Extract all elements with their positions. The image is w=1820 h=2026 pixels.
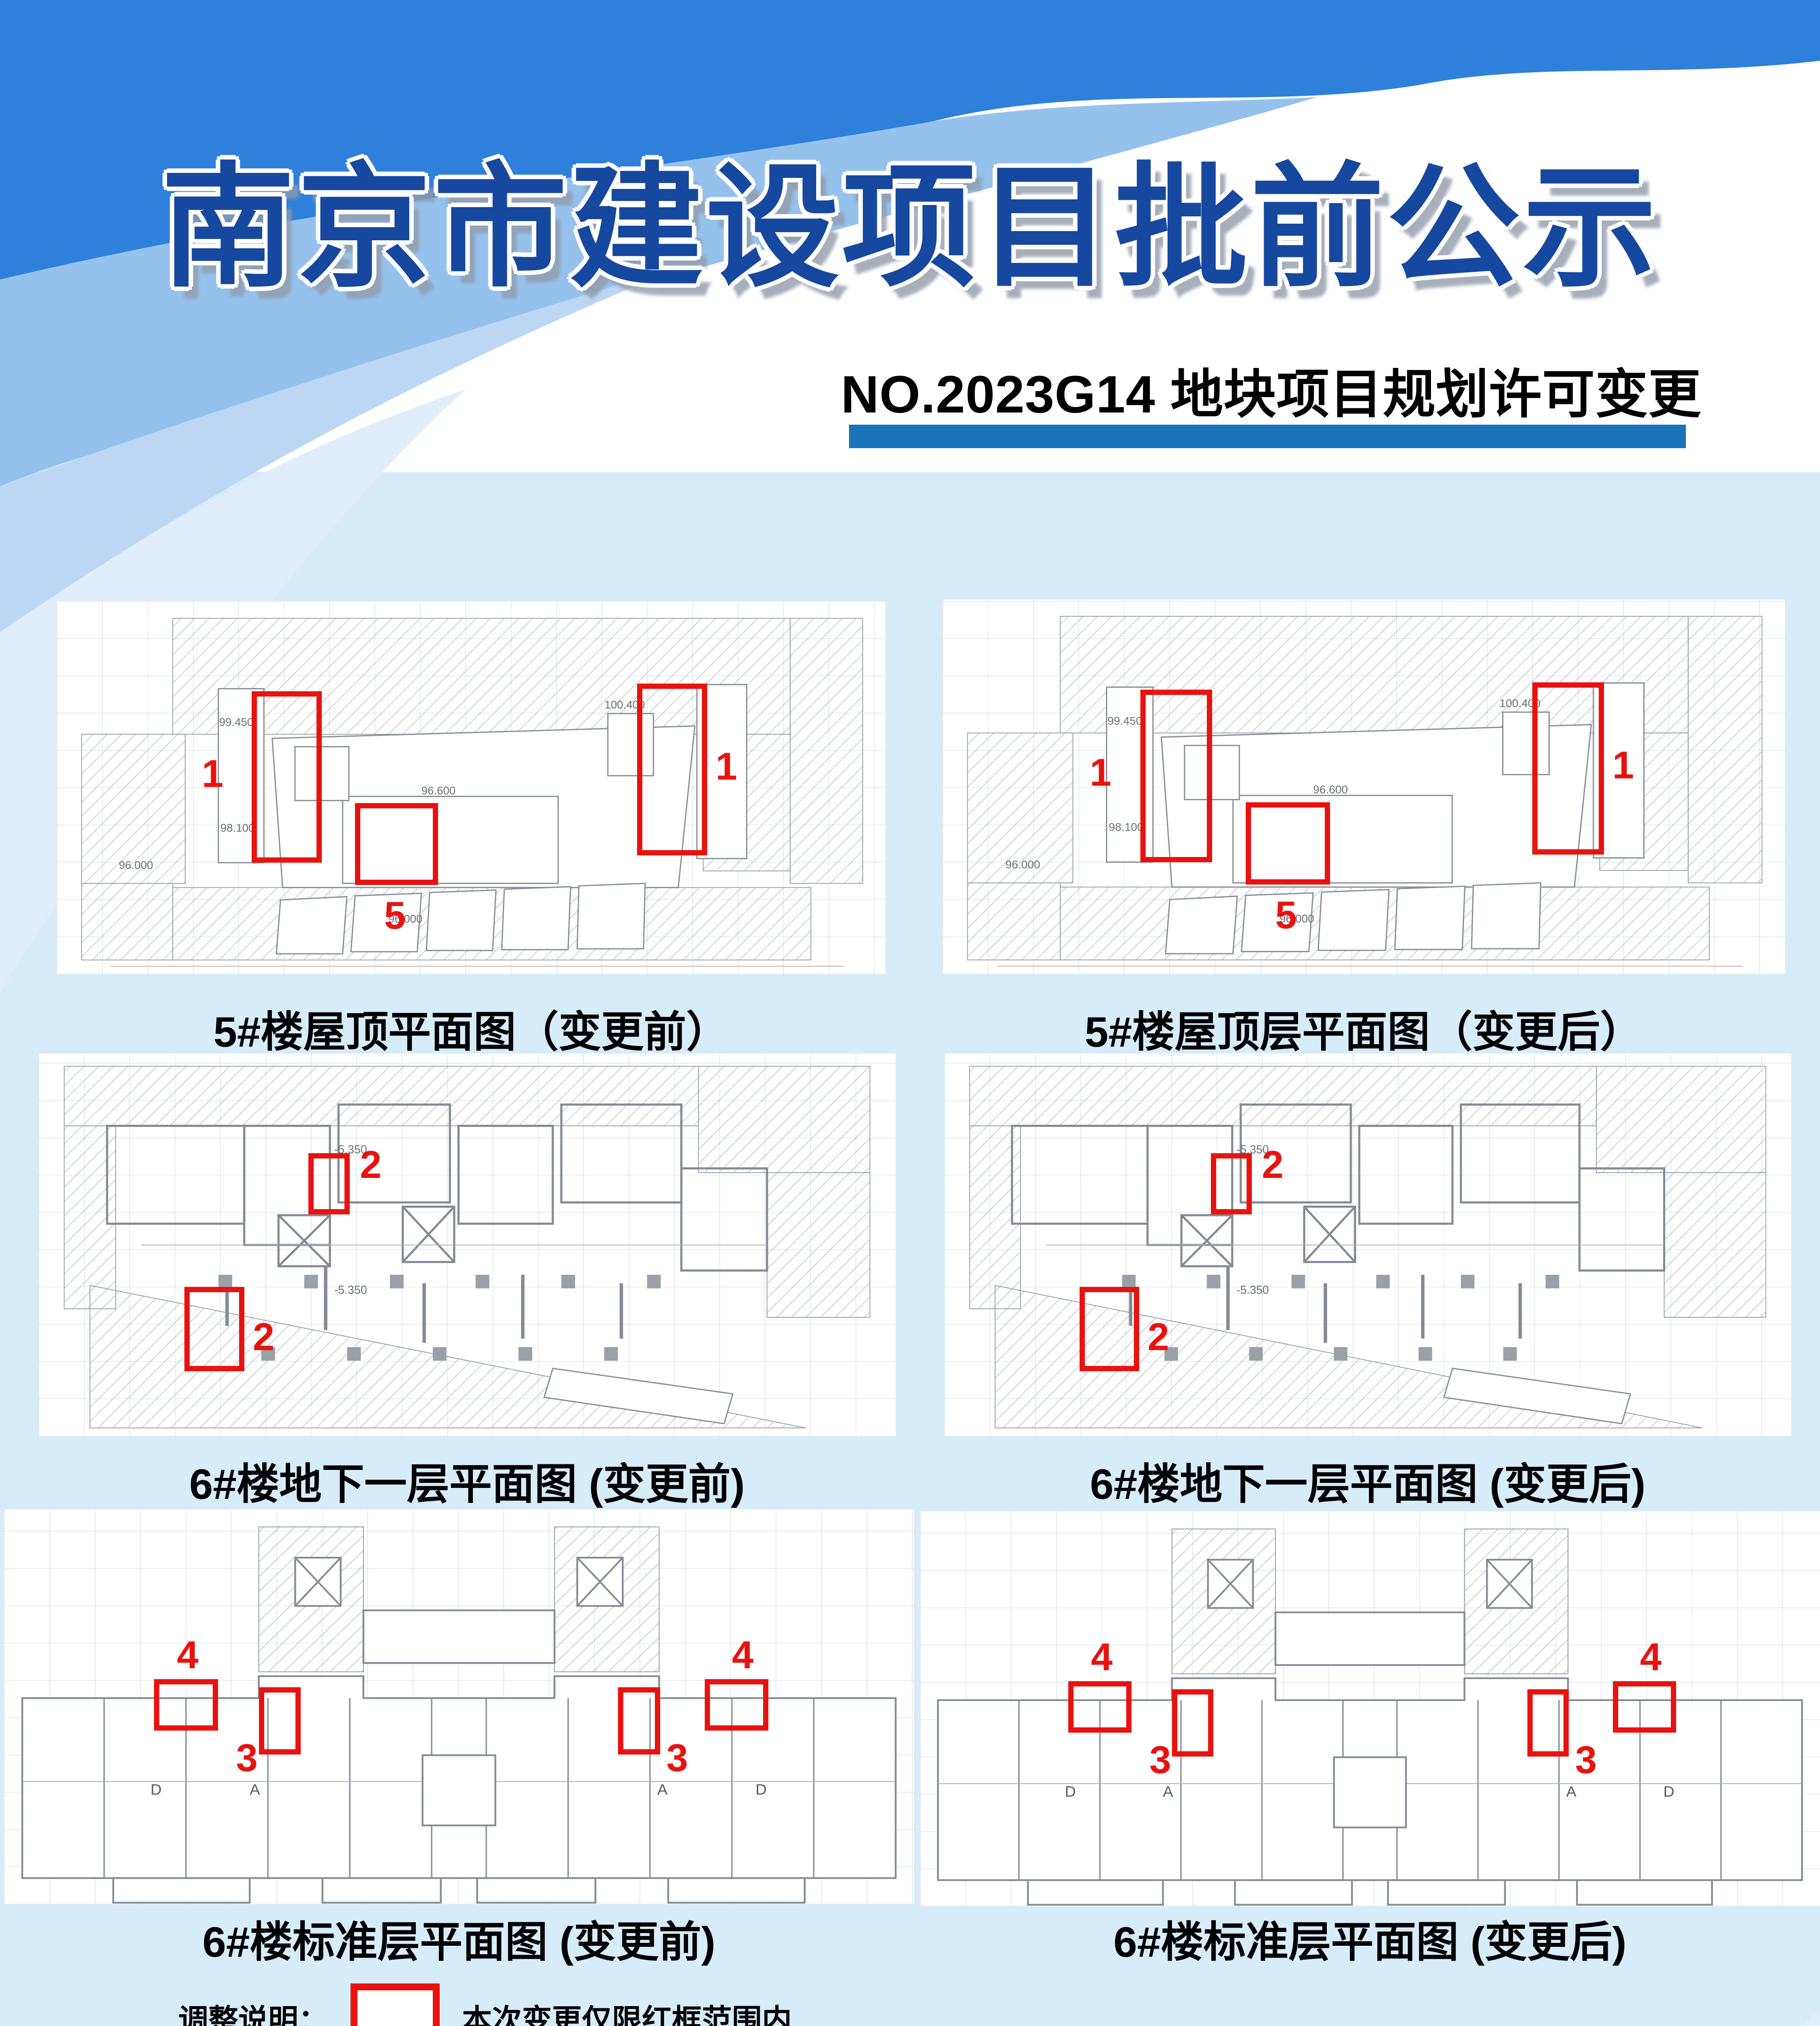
caption-floor-before: 6#楼标准层平面图 (变更前) [4, 1908, 914, 1969]
plan-panel-floor-before: 4 3 3 4 [4, 1509, 914, 1904]
change-box-1 [1140, 690, 1212, 862]
change-box-1 [252, 691, 322, 863]
change-box-5 [355, 803, 438, 885]
subtitle: NO.2023G14 地块项目规划许可变更 [841, 352, 1732, 428]
change-box-4 [1613, 1681, 1676, 1733]
change-box-label-3: 3 [1575, 1741, 1597, 1780]
change-box-4 [705, 1679, 768, 1731]
change-box-label-1: 1 [716, 747, 737, 786]
floor-plan-drawing [920, 1511, 1820, 1906]
corner-band-pale [1175, 2010, 1820, 2026]
change-box-label-2: 2 [1262, 1146, 1283, 1184]
change-box-label-1: 1 [1090, 753, 1111, 792]
basement-plan-drawing [944, 1054, 1791, 1436]
change-box-2 [308, 1153, 350, 1214]
caption-basement-after: 6#楼地下一层平面图 (变更后) [944, 1450, 1791, 1511]
change-box-3 [618, 1687, 660, 1755]
change-box-label-4: 4 [1091, 1638, 1112, 1677]
change-box-label-5: 5 [384, 896, 406, 935]
change-box-label-3: 3 [666, 1739, 688, 1778]
change-box-3 [1172, 1689, 1213, 1757]
change-box-1 [637, 684, 708, 855]
legend-label: 调整说明： [178, 1996, 328, 2026]
change-box-label-3: 3 [236, 1739, 257, 1778]
caption-basement-before: 6#楼地下一层平面图 (变更前) [38, 1450, 896, 1511]
change-box-label-2: 2 [360, 1146, 381, 1184]
change-box-label-4: 4 [1640, 1638, 1662, 1677]
plan-panel-floor-after: 4 3 3 4 [920, 1511, 1820, 1906]
change-box-label-5: 5 [1275, 896, 1297, 935]
legend-row: 调整说明： 本次变更仅限红框范围内 [178, 1983, 792, 2026]
change-box-label-2: 2 [253, 1318, 274, 1357]
change-box-label-4: 4 [732, 1636, 753, 1675]
change-box-1 [1532, 682, 1604, 855]
change-box-2 [1211, 1153, 1251, 1214]
change-box-2 [1080, 1287, 1139, 1371]
change-box-3 [1527, 1689, 1569, 1757]
change-box-4 [1068, 1681, 1131, 1733]
change-box-label-1: 1 [1613, 746, 1634, 785]
change-box-2 [184, 1287, 244, 1371]
basement-plan-drawing [38, 1054, 896, 1436]
page-title: 南京市建设项目批前公示 [0, 149, 1820, 310]
change-box-4 [154, 1679, 218, 1731]
plan-panel-roof-after: 1 5 1 [942, 600, 1785, 975]
plan-panel-roof-before: 1 5 1 [57, 602, 885, 975]
caption-roof-after: 5#楼屋顶层平面图（变更后） [942, 998, 1785, 1059]
roof-plan-drawing [57, 602, 885, 975]
caption-roof-before: 5#楼屋顶平面图（变更前） [57, 998, 885, 1059]
caption-floor-after: 6#楼标准层平面图 (变更后) [920, 1908, 1820, 1969]
change-box-label-2: 2 [1148, 1318, 1169, 1357]
legend-text: 本次变更仅限红框范围内 [462, 1996, 792, 2026]
change-box-3 [259, 1687, 301, 1755]
legend-red-box [351, 1983, 440, 2026]
change-box-label-3: 3 [1149, 1741, 1171, 1780]
plan-panel-basement-after: 2 2 [944, 1054, 1791, 1436]
floor-plan-drawing [4, 1509, 914, 1904]
public-notice-poster: 99.450 98.100 100.400 96.600 96.000 96.0… [0, 0, 1820, 2026]
change-box-label-1: 1 [202, 754, 223, 793]
roof-plan-drawing [942, 600, 1785, 975]
plan-panel-basement-before: 2 2 [38, 1054, 896, 1436]
change-box-label-4: 4 [177, 1636, 199, 1675]
subtitle-underline-bar [849, 425, 1686, 448]
change-box-5 [1246, 802, 1330, 885]
